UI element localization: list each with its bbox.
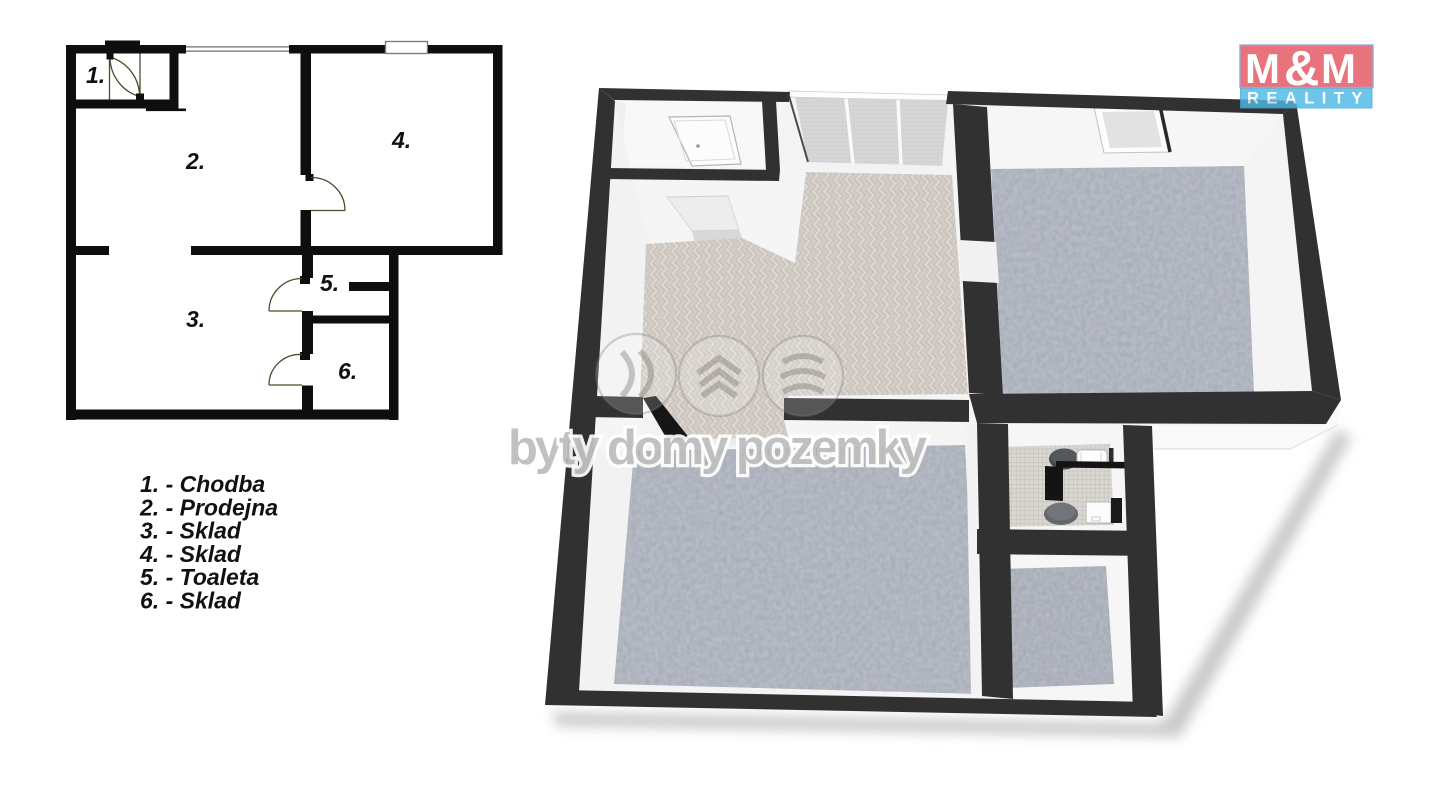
- svg-text:2.: 2.: [185, 148, 205, 174]
- svg-text:4.: 4.: [391, 127, 411, 153]
- svg-text:M: M: [1321, 45, 1356, 92]
- svg-text:1. - Chodba: 1. - Chodba: [140, 471, 265, 497]
- svg-text:3. - Sklad: 3. - Sklad: [140, 518, 242, 544]
- svg-text:6.: 6.: [338, 358, 357, 384]
- svg-text:M: M: [1245, 45, 1280, 92]
- svg-text:5. - Toaleta: 5. - Toaleta: [140, 564, 259, 590]
- svg-text:3.: 3.: [186, 306, 205, 332]
- svg-text:2. - Prodejna: 2. - Prodejna: [139, 494, 278, 520]
- svg-text:4. - Sklad: 4. - Sklad: [139, 541, 242, 567]
- svg-text:6. - Sklad: 6. - Sklad: [140, 588, 242, 614]
- svg-text:&: &: [1284, 42, 1319, 96]
- svg-text:1.: 1.: [86, 62, 105, 88]
- svg-text:5.: 5.: [320, 270, 339, 296]
- svg-text:byty domy pozemky: byty domy pozemky: [508, 421, 927, 475]
